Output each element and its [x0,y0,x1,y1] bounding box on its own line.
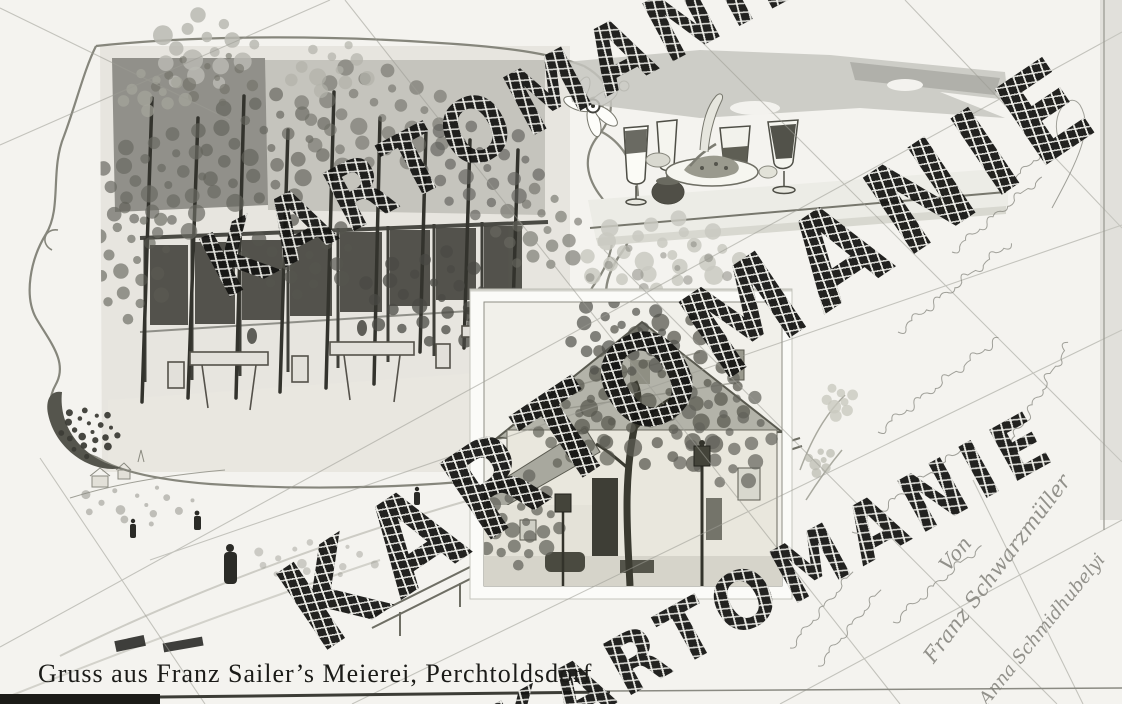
postcard: Von Franz Schwarzmüller Anna Schmidhubel… [0,0,1122,704]
postcard-caption: Gruss aus Franz Sailer’s Meierei, Percht… [38,659,592,689]
